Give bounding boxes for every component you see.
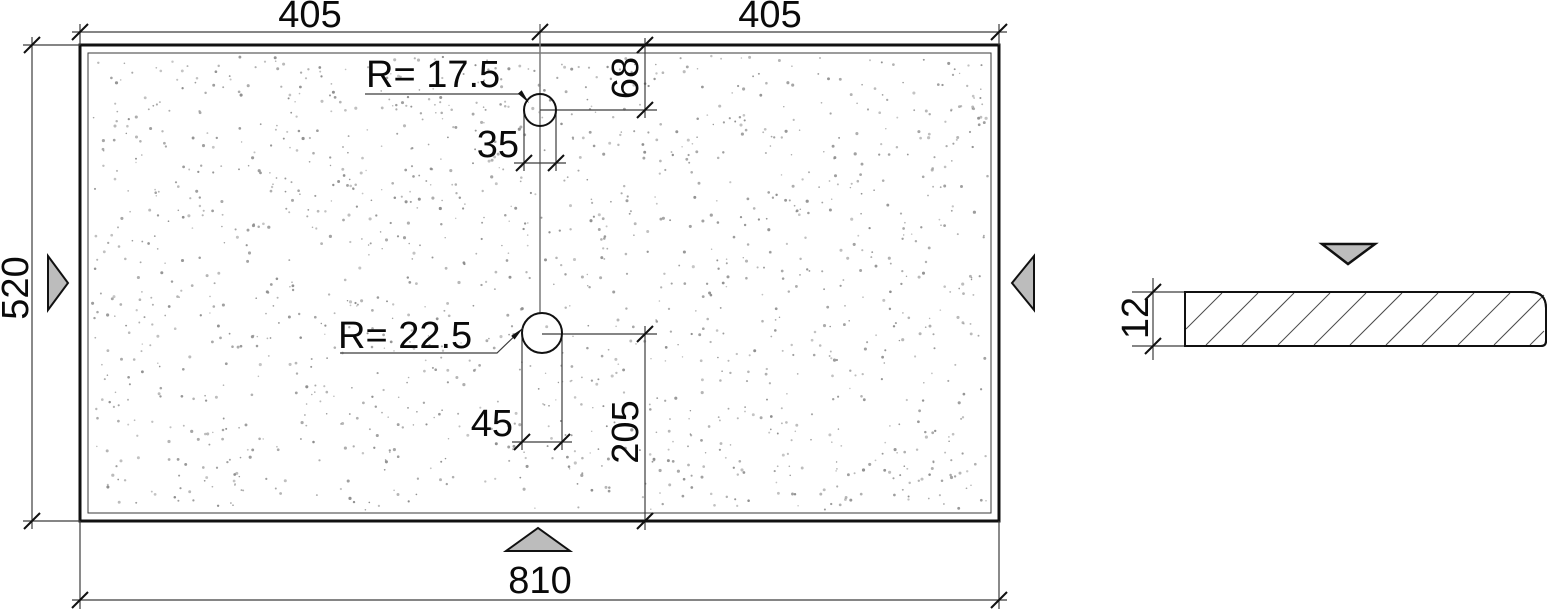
speckle-dot xyxy=(147,242,150,245)
speckle-dot xyxy=(212,486,214,488)
speckle-dot xyxy=(725,457,727,459)
speckle-dot xyxy=(836,461,837,462)
speckle-dot xyxy=(688,162,690,164)
speckle-dot xyxy=(95,235,98,238)
speckle-dot xyxy=(499,335,502,338)
speckle-dot xyxy=(768,432,770,434)
speckle-dot xyxy=(642,143,645,146)
speckle-dot xyxy=(588,286,590,288)
speckle-dot xyxy=(200,165,202,167)
speckle-dot xyxy=(285,208,287,210)
speckle-dot xyxy=(534,193,536,195)
speckle-dot xyxy=(291,181,293,183)
speckle-dot xyxy=(706,114,708,116)
speckle-dot xyxy=(863,398,866,401)
speckle-dot xyxy=(212,84,215,87)
speckle-dot xyxy=(394,196,397,199)
speckle-dot xyxy=(726,496,728,498)
speckle-dot xyxy=(390,222,392,224)
speckle-dot xyxy=(836,468,838,470)
speckle-dot xyxy=(866,341,868,343)
speckle-dot xyxy=(358,266,361,269)
speckle-dot xyxy=(439,101,441,103)
speckle-dot xyxy=(686,65,689,68)
speckle-dot xyxy=(614,358,617,361)
speckle-dot xyxy=(967,64,969,66)
speckle-dot xyxy=(683,250,686,253)
speckle-dot xyxy=(857,180,860,183)
speckle-dot xyxy=(543,404,545,406)
speckle-dot xyxy=(235,228,237,230)
speckle-dot xyxy=(533,70,535,72)
speckle-dot xyxy=(182,216,185,219)
speckle-dot xyxy=(941,84,943,86)
speckle-dot xyxy=(284,479,287,482)
speckle-dot xyxy=(319,71,321,73)
speckle-dot xyxy=(925,110,928,113)
speckle-dot xyxy=(951,160,953,162)
speckle-dot xyxy=(885,128,886,129)
speckle-dot xyxy=(381,248,382,249)
speckle-dot xyxy=(591,431,592,432)
speckle-dot xyxy=(299,93,301,95)
speckle-dot xyxy=(360,299,363,302)
speckle-dot xyxy=(844,498,847,501)
speckle-dot xyxy=(548,231,550,233)
speckle-dot xyxy=(423,402,425,404)
speckle-dot xyxy=(408,243,410,245)
speckle-dot xyxy=(660,286,662,288)
speckle-dot xyxy=(821,270,823,272)
speckle-dot xyxy=(412,252,415,255)
speckle-dot xyxy=(587,325,589,327)
speckle-dot xyxy=(176,295,179,298)
speckle-dot xyxy=(950,110,952,112)
speckle-dot xyxy=(948,436,950,438)
speckle-dot xyxy=(482,190,484,192)
speckle-dot xyxy=(710,214,713,217)
speckle-dot xyxy=(682,356,683,357)
speckle-dot xyxy=(204,395,206,397)
speckle-dot xyxy=(668,430,671,433)
speckle-dot xyxy=(96,417,99,420)
speckle-dot xyxy=(571,365,574,368)
speckle-dot xyxy=(889,308,891,310)
speckle-dot xyxy=(764,128,767,131)
speckle-dot xyxy=(377,296,380,299)
speckle-dot xyxy=(738,460,741,463)
speckle-dot xyxy=(795,431,797,433)
speckle-dot xyxy=(217,272,220,275)
speckle-dot xyxy=(970,332,973,335)
speckle-dot xyxy=(760,416,763,419)
speckle-dot xyxy=(428,144,430,146)
speckle-dot xyxy=(220,200,223,203)
speckle-dot xyxy=(276,278,279,281)
speckle-dot xyxy=(534,507,536,509)
speckle-dot xyxy=(113,295,116,298)
speckle-dot xyxy=(455,183,458,186)
speckle-dot xyxy=(695,310,697,312)
speckle-dot xyxy=(698,333,701,336)
speckle-dot xyxy=(956,316,959,319)
speckle-dot xyxy=(257,226,260,229)
speckle-dot xyxy=(655,319,656,320)
speckle-dot xyxy=(529,365,531,367)
speckle-dot xyxy=(331,200,332,201)
speckle-dot xyxy=(326,391,329,394)
speckle-dot xyxy=(978,123,981,126)
speckle-dot xyxy=(163,142,166,145)
speckle-dot xyxy=(687,139,690,142)
speckle-dot xyxy=(680,57,682,59)
speckle-dot xyxy=(392,303,394,305)
speckle-dot xyxy=(439,478,442,481)
speckle-dot xyxy=(307,209,309,211)
technical-drawing-page: 405 405 520 810 68 205 35 45 R= 17.5 R= … xyxy=(0,0,1550,611)
speckle-dot xyxy=(118,404,120,406)
speckle-dot xyxy=(137,276,140,279)
speckle-dot xyxy=(633,130,635,132)
speckle-dot xyxy=(314,391,315,392)
speckle-dot xyxy=(457,281,460,284)
speckle-dot xyxy=(599,276,602,279)
speckle-dot xyxy=(781,174,783,176)
speckle-dot xyxy=(266,290,269,293)
speckle-dot xyxy=(526,465,529,468)
speckle-dot xyxy=(985,500,987,502)
speckle-dot xyxy=(126,133,128,135)
speckle-dot xyxy=(595,383,598,386)
speckle-dot xyxy=(422,118,424,120)
speckle-dot xyxy=(939,219,941,221)
dim-label-810: 810 xyxy=(508,560,571,602)
speckle-dot xyxy=(198,257,201,260)
speckle-dot xyxy=(368,254,370,256)
speckle-dot xyxy=(833,359,836,362)
speckle-dot xyxy=(940,309,942,311)
speckle-dot xyxy=(932,333,934,335)
speckle-dot xyxy=(258,376,260,378)
speckle-dot xyxy=(709,341,711,343)
speckle-dot xyxy=(439,207,442,210)
speckle-dot xyxy=(655,64,657,66)
speckle-dot xyxy=(242,489,244,491)
speckle-dot xyxy=(177,458,180,461)
speckle-dot xyxy=(882,94,884,96)
speckle-dot xyxy=(784,199,787,202)
speckle-dot xyxy=(494,288,496,290)
speckle-dot xyxy=(376,434,379,437)
speckle-dot xyxy=(375,405,377,407)
speckle-dot xyxy=(333,395,335,397)
speckle-dot xyxy=(734,121,736,123)
speckle-dot xyxy=(451,184,453,186)
speckle-dot xyxy=(782,454,785,457)
speckle-dot xyxy=(864,347,867,350)
speckle-dot xyxy=(420,112,422,114)
speckle-dot xyxy=(187,214,190,217)
speckle-dot xyxy=(588,67,590,69)
speckle-dot xyxy=(410,201,412,203)
speckle-dot xyxy=(197,438,200,441)
speckle-dot xyxy=(571,434,573,436)
speckle-dot xyxy=(124,258,127,261)
speckle-dot xyxy=(972,95,975,98)
speckle-dot xyxy=(944,452,946,454)
speckle-dot xyxy=(441,200,442,201)
speckle-dot xyxy=(318,66,321,69)
speckle-dot xyxy=(690,171,693,174)
speckle-dot xyxy=(312,227,314,229)
speckle-dot xyxy=(189,197,191,199)
speckle-dot xyxy=(397,235,399,237)
speckle-dot xyxy=(957,233,959,235)
speckle-dot xyxy=(571,113,573,115)
speckle-dot xyxy=(621,131,622,132)
speckle-dot xyxy=(766,368,768,370)
speckle-dot xyxy=(889,290,892,293)
speckle-dot xyxy=(795,210,797,212)
speckle-dot xyxy=(678,265,680,267)
speckle-dot xyxy=(664,169,666,171)
speckle-dot xyxy=(888,153,891,156)
speckle-dot xyxy=(206,432,209,435)
speckle-dot xyxy=(766,218,768,220)
speckle-dot xyxy=(464,203,465,204)
speckle-dot xyxy=(701,219,704,222)
speckle-dot xyxy=(591,489,594,492)
speckle-dot xyxy=(133,358,136,361)
speckle-dot xyxy=(349,241,351,243)
speckle-dot xyxy=(560,264,562,266)
speckle-dot xyxy=(247,84,250,87)
speckle-dot xyxy=(354,184,357,187)
speckle-dot xyxy=(156,195,158,197)
speckle-dot xyxy=(600,238,603,241)
speckle-dot xyxy=(799,274,801,276)
speckle-dot xyxy=(829,326,831,328)
speckle-dot xyxy=(315,227,317,229)
speckle-dot xyxy=(659,469,662,472)
speckle-dot xyxy=(389,451,391,453)
speckle-dot xyxy=(773,136,775,138)
speckle-dot xyxy=(423,370,426,373)
speckle-dot xyxy=(927,136,930,139)
speckle-dot xyxy=(523,451,525,453)
speckle-dot xyxy=(231,345,234,348)
speckle-dot xyxy=(604,235,607,238)
speckle-dot xyxy=(520,308,523,311)
speckle-dot xyxy=(797,373,799,375)
speckle-dot xyxy=(550,437,553,440)
speckle-dot xyxy=(598,228,601,231)
speckle-dot xyxy=(307,68,309,70)
speckle-dot xyxy=(120,79,122,81)
speckle-dot xyxy=(265,313,267,315)
speckle-dot xyxy=(619,134,621,136)
speckle-dot xyxy=(124,63,126,65)
speckle-dot xyxy=(171,280,173,282)
speckle-dot xyxy=(723,121,725,123)
speckle-dot xyxy=(159,366,161,368)
speckle-dot xyxy=(928,498,930,500)
speckle-dot xyxy=(978,335,980,337)
speckle-dot xyxy=(823,151,824,152)
speckle-dot xyxy=(918,480,920,482)
speckle-dot xyxy=(518,65,521,68)
speckle-dot xyxy=(289,363,292,366)
speckle-dot xyxy=(908,317,911,320)
speckle-dot xyxy=(814,331,817,334)
speckle-dot xyxy=(279,492,282,495)
speckle-dot xyxy=(791,84,794,87)
speckle-dot xyxy=(316,129,319,132)
dim-label-12: 12 xyxy=(1115,297,1157,339)
speckle-dot xyxy=(846,257,849,260)
speckle-dot xyxy=(136,309,138,311)
speckle-dot xyxy=(902,227,905,230)
speckle-dot xyxy=(908,495,910,497)
speckle-dot xyxy=(348,497,351,500)
speckle-dot xyxy=(954,364,956,366)
speckle-dot xyxy=(893,325,895,327)
speckle-dot xyxy=(425,180,427,182)
speckle-dot xyxy=(223,384,225,386)
speckle-dot xyxy=(102,139,105,142)
speckle-dot xyxy=(981,103,983,105)
speckle-dot xyxy=(728,408,730,410)
speckle-dot xyxy=(310,366,312,368)
speckle-dot xyxy=(900,213,902,215)
speckle-dot xyxy=(558,382,559,383)
speckle-dot xyxy=(862,296,864,298)
speckle-dot xyxy=(211,340,214,343)
speckle-dot xyxy=(753,349,756,352)
speckle-dot xyxy=(265,478,267,480)
speckle-dot xyxy=(919,137,922,140)
speckle-dot xyxy=(617,144,619,146)
speckle-dot xyxy=(366,129,368,131)
speckle-dot xyxy=(270,337,272,339)
speckle-dot xyxy=(339,101,342,104)
speckle-dot xyxy=(502,168,504,170)
speckle-dot xyxy=(668,308,670,310)
speckle-dot xyxy=(412,175,415,178)
speckle-dot xyxy=(204,480,206,482)
speckle-dot xyxy=(653,459,655,461)
speckle-dot xyxy=(860,213,862,215)
speckle-dot xyxy=(578,66,580,68)
speckle-dot xyxy=(881,378,883,380)
speckle-dot xyxy=(407,407,409,409)
speckle-dot xyxy=(217,325,220,328)
speckle-dot xyxy=(903,234,904,235)
speckle-dot xyxy=(219,337,222,340)
speckle-dot xyxy=(601,465,603,467)
speckle-dot xyxy=(804,237,806,239)
speckle-dot xyxy=(697,68,699,70)
speckle-dot xyxy=(566,456,569,459)
speckle-dot xyxy=(389,449,391,451)
speckle-dot xyxy=(844,305,846,307)
speckle-dot xyxy=(646,230,649,233)
speckle-dot xyxy=(983,121,986,124)
speckle-dot xyxy=(395,104,397,106)
edge-marker-right-icon xyxy=(1012,256,1034,310)
speckle-dot xyxy=(925,326,927,328)
speckle-dot xyxy=(440,223,442,225)
speckle-dot xyxy=(485,281,487,283)
speckle-dot xyxy=(520,176,523,179)
speckle-dot xyxy=(705,452,706,453)
speckle-dot xyxy=(986,175,989,178)
speckle-dot xyxy=(411,258,413,260)
speckle-dot xyxy=(781,270,784,273)
speckle-dot xyxy=(943,285,946,288)
speckle-dot xyxy=(168,220,170,222)
speckle-dot xyxy=(167,440,170,443)
speckle-dot xyxy=(785,130,788,133)
speckle-dot xyxy=(883,469,886,472)
speckle-dot xyxy=(985,117,988,120)
speckle-dot xyxy=(388,98,390,100)
speckle-dot xyxy=(943,185,946,188)
speckle-dot xyxy=(289,94,292,97)
speckle-dot xyxy=(598,448,600,450)
speckle-dot xyxy=(370,242,372,244)
speckle-dot xyxy=(362,193,364,195)
speckle-dot xyxy=(560,123,563,126)
speckle-dot xyxy=(508,221,509,222)
speckle-dot xyxy=(837,183,839,185)
speckle-dot xyxy=(677,470,680,473)
speckle-dot xyxy=(774,470,776,472)
speckle-dot xyxy=(911,233,913,235)
speckle-dot xyxy=(875,265,878,268)
speckle-dot xyxy=(288,97,290,99)
speckle-dot xyxy=(568,465,571,468)
speckle-dot xyxy=(570,380,572,382)
speckle-dot xyxy=(351,387,353,389)
speckle-dot xyxy=(948,440,950,442)
speckle-dot xyxy=(493,347,496,350)
speckle-dot xyxy=(215,396,218,399)
speckle-dot xyxy=(944,166,947,169)
speckle-dot xyxy=(920,226,922,228)
speckle-dot xyxy=(729,117,731,119)
speckle-dot xyxy=(424,306,426,308)
speckle-dot xyxy=(892,477,894,479)
speckle-dot xyxy=(208,444,210,446)
speckle-dot xyxy=(838,137,840,139)
speckle-dot xyxy=(135,135,138,138)
speckle-dot xyxy=(799,129,801,131)
speckle-dot xyxy=(183,425,185,427)
speckle-dot xyxy=(507,106,509,108)
speckle-dot xyxy=(949,474,952,477)
speckle-dot xyxy=(544,149,546,151)
speckle-dot xyxy=(882,299,885,302)
speckle-dot xyxy=(323,385,325,387)
speckle-dot xyxy=(595,76,597,78)
speckle-dot xyxy=(586,347,589,350)
speckle-dot xyxy=(595,111,596,112)
speckle-dot xyxy=(821,202,823,204)
speckle-dot xyxy=(504,101,506,103)
speckle-dot xyxy=(347,214,350,217)
speckle-dot xyxy=(690,486,693,489)
